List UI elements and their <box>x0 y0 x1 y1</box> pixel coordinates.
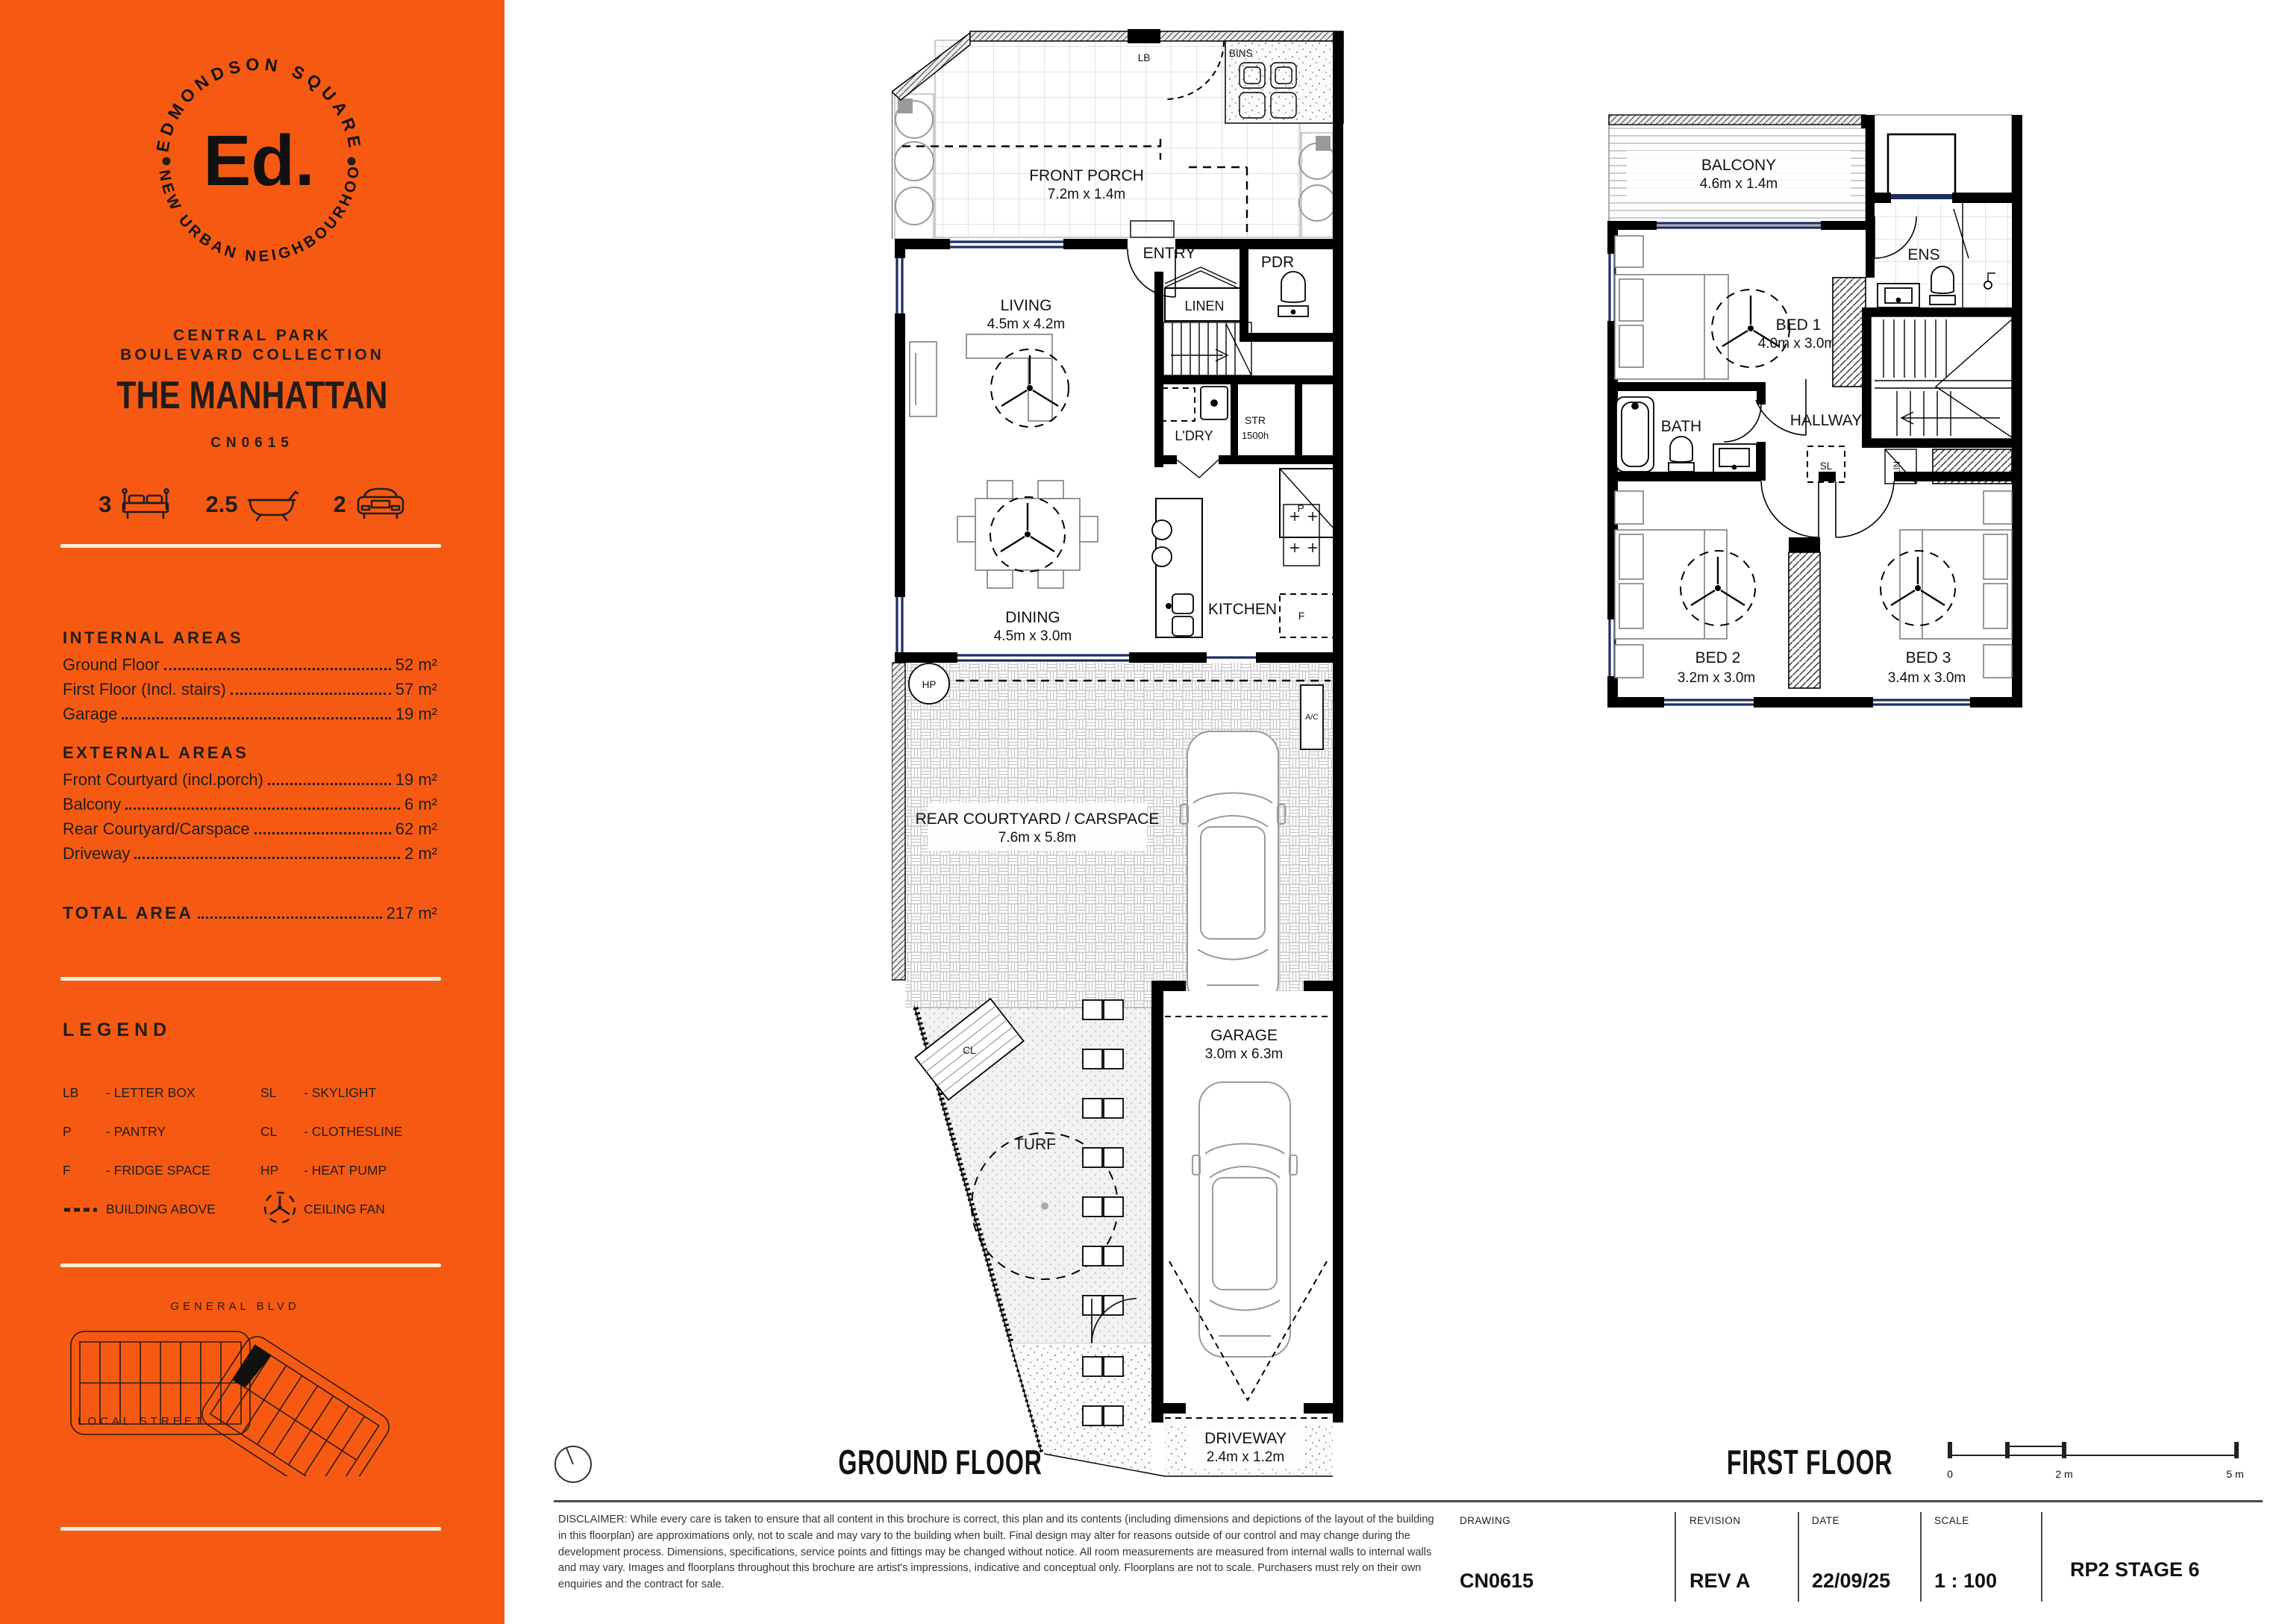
skylight-shaft <box>1888 134 1955 197</box>
divider-4 <box>60 1527 441 1531</box>
balcony-dims: 4.6m x 1.4m <box>1700 176 1778 192</box>
internal-areas-heading: INTERNAL AREAS <box>63 628 437 648</box>
kitchen-label: KITCHEN <box>1208 601 1277 618</box>
bins-label: BINS <box>1229 48 1253 59</box>
ac-label: A/C <box>1305 713 1319 722</box>
heat-pump: HP <box>909 663 949 704</box>
hallway: HALLWAY SL <box>1790 412 1862 482</box>
garage-car <box>1192 1082 1297 1357</box>
area-label: Garage <box>63 705 117 724</box>
bed2-room: BED 2 3.2m x 3.0m <box>1615 491 1755 686</box>
legend-item-ceiling-fan: CEILING FAN <box>260 1190 451 1228</box>
ldry-label: L'DRY <box>1175 428 1213 443</box>
total-area-label: TOTAL AREA <box>63 903 193 923</box>
titleblock-divider <box>1798 1512 1799 1602</box>
bed1-dims: 4.0m x 3.0m <box>1758 336 1837 352</box>
fridge-space <box>1280 594 1340 637</box>
plan-code: CN0615 <box>0 435 504 452</box>
hallway-label: HALLWAY <box>1790 412 1862 429</box>
front-porch-label: FRONT PORCH <box>1029 167 1144 184</box>
legend-item-lb: LB- LETTER BOX <box>63 1073 260 1112</box>
area-label: Driveway <box>63 844 130 863</box>
revision-value: REV A <box>1689 1570 1751 1593</box>
stat-baths: 2.5 <box>205 487 298 522</box>
plan-name: THE MANHATTAN <box>46 373 459 418</box>
left-boundary-fence <box>892 663 905 980</box>
collection-line-1: CENTRAL PARK <box>0 326 504 346</box>
date-label: DATE <box>1812 1515 1890 1526</box>
ground-floor-title: GROUND FLOOR <box>825 1442 1055 1482</box>
living-label: LIVING <box>1001 297 1052 314</box>
baths-count: 2.5 <box>205 491 237 518</box>
date-value: 22/09/25 <box>1812 1570 1890 1593</box>
legend-item-sl: SL- SKYLIGHT <box>260 1073 451 1112</box>
garage-dims: 3.0m x 6.3m <box>1205 1046 1284 1062</box>
bed1-robe <box>1833 278 1866 387</box>
linen-label: LINEN <box>1184 299 1224 313</box>
area-row: Garage19 m² <box>63 705 437 729</box>
turf-label: TURF <box>1014 1136 1056 1153</box>
stat-cars: 2 <box>334 487 406 522</box>
titleblock-revision: REVISION REV A <box>1689 1515 1751 1593</box>
ens-label: ENS <box>1907 246 1939 263</box>
area-row: Driveway2 m² <box>63 844 437 869</box>
dining-label: DINING <box>1005 609 1060 626</box>
stat-beds: 3 <box>99 487 171 522</box>
garage: GARAGE 3.0m x 6.3m <box>1151 981 1343 1422</box>
area-label: First Floor (Incl. stairs) <box>63 680 226 699</box>
driveway-dims: 2.4m x 1.2m <box>1207 1449 1285 1465</box>
car-icon <box>355 487 406 522</box>
garage-label: GARAGE <box>1210 1027 1278 1044</box>
bed3-room: BED 3 3.4m x 3.0m <box>1881 491 2012 686</box>
legend-item-f: F- FRIDGE SPACE <box>63 1151 260 1190</box>
bed-icon <box>120 487 171 522</box>
legend-item-p: P- PANTRY <box>63 1112 260 1151</box>
ensuite: ENS <box>1862 203 2022 316</box>
cl-label: CL <box>963 1045 976 1056</box>
pantry: P <box>1280 469 1342 537</box>
divider-2 <box>60 977 441 981</box>
collection-line-2: BOULEVARD COLLECTION <box>0 346 504 365</box>
fridge-label: F <box>1298 610 1305 622</box>
kitchen: F KITCHEN <box>1152 499 1340 637</box>
laundry-door <box>1177 460 1219 478</box>
brand-sidebar: EDMONDSON SQUARE A NEW URBAN NEIGHBOURHO… <box>0 0 504 1624</box>
legend-item-hp: HP- HEAT PUMP <box>260 1151 451 1190</box>
stats-row: 3 2.5 2 <box>0 487 504 522</box>
scale-0: 0 <box>1947 1468 1953 1480</box>
titleblock-divider <box>1675 1512 1676 1602</box>
bed3-label: BED 3 <box>1906 649 1951 666</box>
legend-item-cl: CL- CLOTHESLINE <box>260 1112 451 1151</box>
bins-area: BINS <box>1225 41 1343 123</box>
titleblock-scale: SCALE 1 : 100 <box>1934 1515 1997 1593</box>
area-row: Front Courtyard (incl.porch)19 m² <box>63 770 437 795</box>
area-value: 57 m² <box>396 680 437 699</box>
stage-value: RP2 STAGE 6 <box>2070 1558 2200 1581</box>
revision-label: REVISION <box>1689 1515 1751 1526</box>
entry-label: ENTRY <box>1143 245 1196 262</box>
street-label-general-blvd: GENERAL BLVD <box>0 1300 470 1313</box>
laundry-room: L'DRY <box>1154 384 1241 478</box>
bed1-label: BED 1 <box>1776 316 1822 334</box>
ac-unit: A/C <box>1301 685 1323 749</box>
drawing-value: CN0615 <box>1460 1570 1534 1593</box>
first-floor-plan: BALCONY 4.6m x 1.4m <box>1604 104 2089 713</box>
rear-courtyard-label: REAR COURTYARD / CARSPACE <box>916 811 1160 828</box>
scale-5m: 5 m <box>2226 1468 2243 1480</box>
scale-value: 1 : 100 <box>1934 1570 1997 1593</box>
bed2-door-swing <box>1761 481 1819 537</box>
stairs-ground <box>1154 322 1343 384</box>
bath-label: BATH <box>1661 418 1701 435</box>
bathroom: BATH <box>1607 382 1766 481</box>
bed2-bed3-robe <box>1789 552 1820 688</box>
street-label-local-street: LOCAL STREET <box>52 1415 231 1428</box>
divider-1 <box>60 544 441 548</box>
area-value: 2 m² <box>404 844 437 863</box>
hp-label: HP <box>922 679 937 690</box>
bath-icon <box>247 487 299 522</box>
dashed-line-icon <box>63 1206 97 1214</box>
logo-dot-right <box>348 157 356 166</box>
area-value: 6 m² <box>404 795 437 814</box>
area-row: Rear Courtyard/Carspace62 m² <box>63 819 437 844</box>
titleblock-drawing: DRAWING CN0615 <box>1460 1515 1534 1593</box>
stairs-first <box>1862 316 2022 448</box>
titleblock-divider <box>2041 1512 2042 1602</box>
titleblock-divider <box>1920 1512 1922 1602</box>
front-porch-dims: 7.2m x 1.4m <box>1048 187 1126 202</box>
balcony-label: BALCONY <box>1701 157 1776 174</box>
dining: DINING 4.5m x 3.0m <box>957 481 1098 644</box>
area-value: 52 m² <box>396 655 437 675</box>
edmondson-square-logo: EDMONDSON SQUARE A NEW URBAN NEIGHBOURHO… <box>140 42 378 281</box>
ground-floor-plan: BINS LB FRONT PORCH 7.2m x 1.4m <box>892 21 1354 1487</box>
scale-2m: 2 m <box>2055 1468 2072 1480</box>
dining-dims: 4.5m x 3.0m <box>994 628 1072 644</box>
external-areas-heading: EXTERNAL AREAS <box>63 743 437 763</box>
living-dims: 4.5m x 4.2m <box>987 316 1066 332</box>
area-row: Balcony6 m² <box>63 795 437 819</box>
pdr-label: PDR <box>1261 254 1294 271</box>
area-label: Rear Courtyard/Carspace <box>63 819 250 839</box>
scale-bar: 0 2 m 5 m <box>1940 1439 2246 1485</box>
area-row: First Floor (Incl. stairs)57 m² <box>63 680 437 705</box>
ceiling-fan-icon <box>260 1188 299 1227</box>
cars-count: 2 <box>334 491 346 518</box>
carspace-car <box>1181 731 1285 1006</box>
area-label: Balcony <box>63 795 121 814</box>
north-arrow <box>552 1442 597 1487</box>
area-label: Ground Floor <box>63 655 160 675</box>
divider-3 <box>60 1264 441 1267</box>
area-value: 19 m² <box>396 770 437 790</box>
legend-heading: LEGEND <box>63 1019 172 1041</box>
sl-label: SL <box>1820 460 1833 472</box>
collection-title: CENTRAL PARK BOULEVARD COLLECTION <box>0 326 504 366</box>
bed2-label: BED 2 <box>1695 649 1741 666</box>
driveway-label: DRIVEWAY <box>1204 1430 1287 1447</box>
brochure-page: EDMONDSON SQUARE A NEW URBAN NEIGHBOURHO… <box>0 0 2285 1624</box>
logo-dot-left <box>163 157 171 166</box>
lb-label: LB <box>1138 52 1151 63</box>
titleblock-date: DATE 22/09/25 <box>1812 1515 1890 1593</box>
drawing-label: DRAWING <box>1460 1515 1534 1526</box>
beds-count: 3 <box>99 491 111 518</box>
rear-courtyard-dims: 7.6m x 5.8m <box>998 830 1077 846</box>
logo-mark: Ed. <box>203 121 314 201</box>
balcony: BALCONY 4.6m x 1.4m <box>1609 115 1875 225</box>
str-height-label: 1500h <box>1242 430 1269 441</box>
first-floor-title: FIRST FLOOR <box>1695 1442 1925 1482</box>
titleblock-rule <box>554 1500 2263 1502</box>
total-area-value: 217 m² <box>387 904 437 923</box>
area-label: Front Courtyard (incl.porch) <box>63 770 263 790</box>
site-location-map <box>63 1319 414 1476</box>
external-areas: EXTERNAL AREAS Front Courtyard (incl.por… <box>63 743 437 869</box>
bed2-dims: 3.2m x 3.0m <box>1678 670 1756 686</box>
legend-item-building-above: BUILDING ABOVE <box>63 1190 260 1228</box>
bath-door-swing <box>1724 405 1761 442</box>
internal-areas: INTERNAL AREAS Ground Floor52 m² First F… <box>63 628 437 729</box>
scale-label: SCALE <box>1934 1515 1997 1526</box>
letter-box <box>1128 29 1160 43</box>
legend: LB- LETTER BOX SL- SKYLIGHT P- PANTRY CL… <box>63 1073 451 1228</box>
total-area: TOTAL AREA217 m² <box>63 903 437 928</box>
bed3-door-swing <box>1836 481 1894 537</box>
area-value: 62 m² <box>396 819 437 839</box>
bed3-dims: 3.4m x 3.0m <box>1888 670 1966 686</box>
living-furniture <box>910 334 1052 421</box>
str-label: STR <box>1245 414 1266 426</box>
area-value: 19 m² <box>396 705 437 724</box>
area-row: Ground Floor52 m² <box>63 655 437 680</box>
disclaimer-text: DISCLAIMER: While every care is taken to… <box>558 1512 1442 1593</box>
